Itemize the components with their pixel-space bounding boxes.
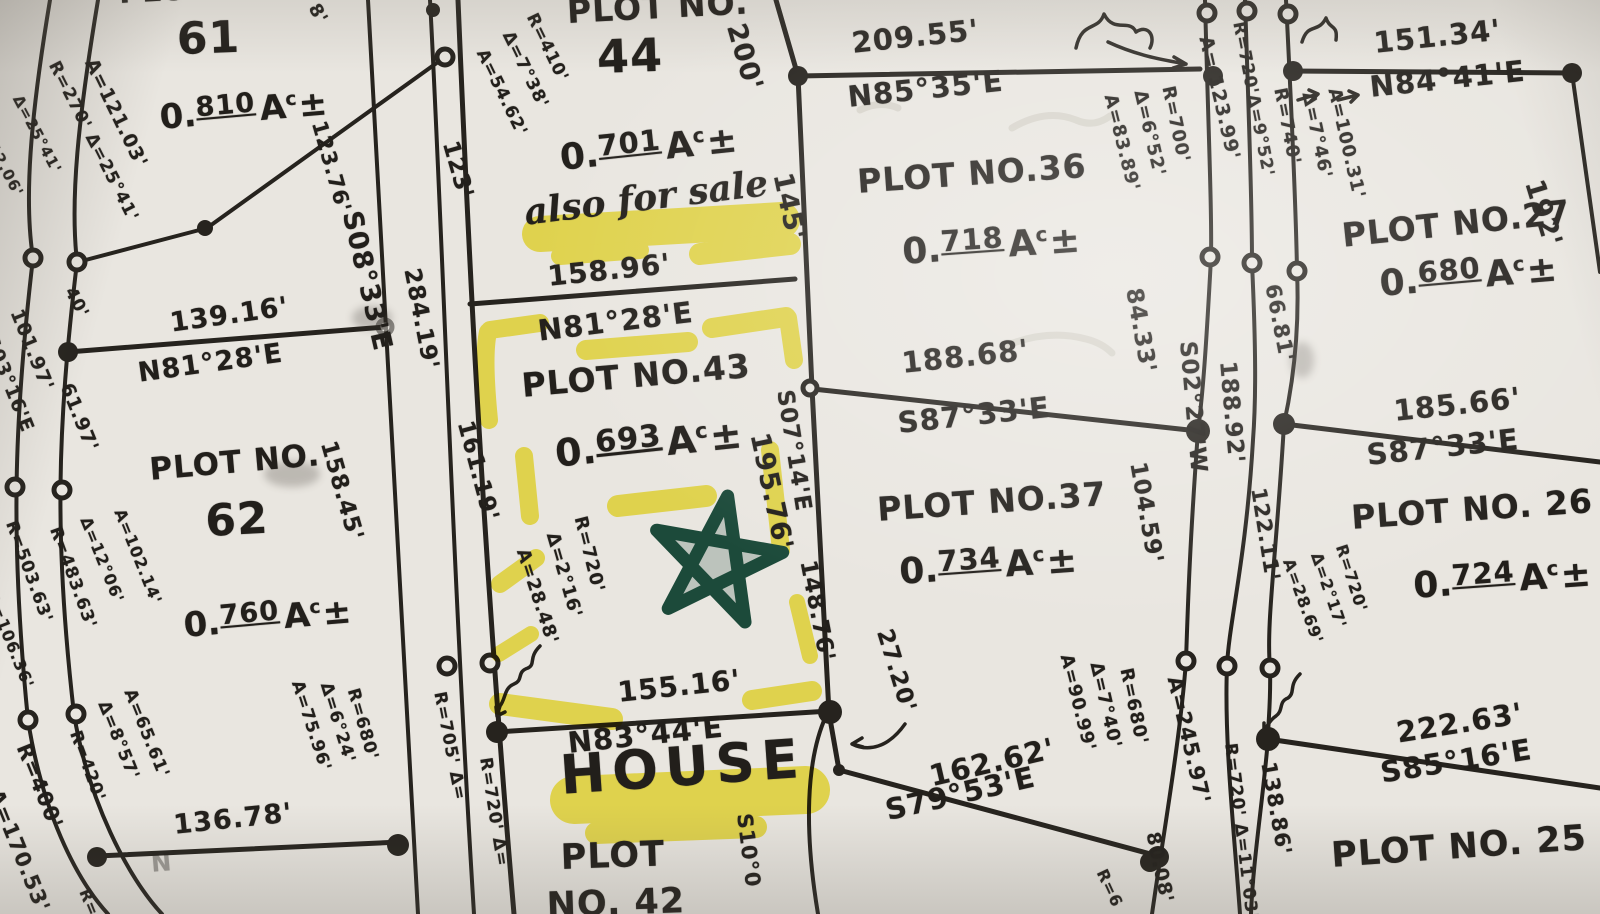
- leader-27-20: [852, 724, 905, 748]
- acre-unit-sup: c: [1512, 252, 1526, 276]
- acre-prefix: 0.: [898, 549, 940, 593]
- plot-61-number: 61: [176, 12, 241, 65]
- squiggle-doodle: [1302, 18, 1336, 42]
- acre-unit: A: [664, 124, 696, 168]
- acre-plusminus: ±: [1048, 220, 1081, 263]
- acre-unit-sup: c: [285, 89, 298, 111]
- acre-plusminus: ±: [705, 119, 739, 163]
- plot-44-number: 44: [596, 28, 664, 84]
- acre-unit: A: [1518, 557, 1549, 600]
- acre-unit-sup: c: [1032, 543, 1045, 567]
- acre-prefix: 0.: [1412, 563, 1454, 607]
- bearing-fragment: N: [150, 848, 173, 878]
- scanned-plat-map: PLOT NO. 61 0.810Ac± A=121.03' R=270' Δ=…: [0, 0, 1600, 914]
- acre-digits: 718: [939, 220, 1004, 258]
- acre-prefix: 0.: [553, 428, 598, 476]
- acre-prefix: 0.: [1378, 261, 1420, 305]
- acre-prefix: 0.: [901, 229, 943, 273]
- acre-unit: A: [258, 87, 288, 129]
- acre-digits: 724: [1450, 554, 1515, 592]
- acre-unit: A: [1007, 223, 1038, 266]
- arrow-line: [1108, 42, 1186, 68]
- plot-42-title: PLOT: [560, 834, 666, 878]
- acre-prefix: 0.: [182, 603, 222, 646]
- plot-42-number: NO. 42: [546, 881, 686, 914]
- acre-plusminus: ±: [708, 412, 744, 459]
- acre-unit: A: [1484, 252, 1515, 295]
- acre-plusminus: ±: [321, 591, 353, 633]
- acre-digits: 760: [218, 595, 280, 631]
- acre-unit-sup: c: [309, 597, 322, 619]
- acre-plusminus: ±: [1559, 554, 1592, 597]
- acre-prefix: 0.: [558, 134, 601, 179]
- acre-digits: 680: [1416, 250, 1482, 289]
- acre-unit-sup: c: [1546, 557, 1559, 581]
- acre-unit-sup: c: [1035, 223, 1048, 247]
- acre-unit: A: [282, 595, 312, 637]
- acre-prefix: 0.: [158, 95, 198, 138]
- acre-plusminus: ±: [1525, 249, 1559, 292]
- acre-unit-sup: c: [694, 418, 709, 443]
- acre-digits: 810: [194, 87, 256, 123]
- acre-digits: 693: [593, 418, 663, 460]
- acre-unit: A: [1004, 543, 1035, 586]
- acre-digits: 701: [596, 123, 662, 163]
- acre-plusminus: ±: [1045, 540, 1078, 583]
- acre-unit-sup: c: [691, 124, 705, 148]
- plot-62-number: 62: [204, 493, 270, 547]
- acre-digits: 734: [936, 540, 1001, 578]
